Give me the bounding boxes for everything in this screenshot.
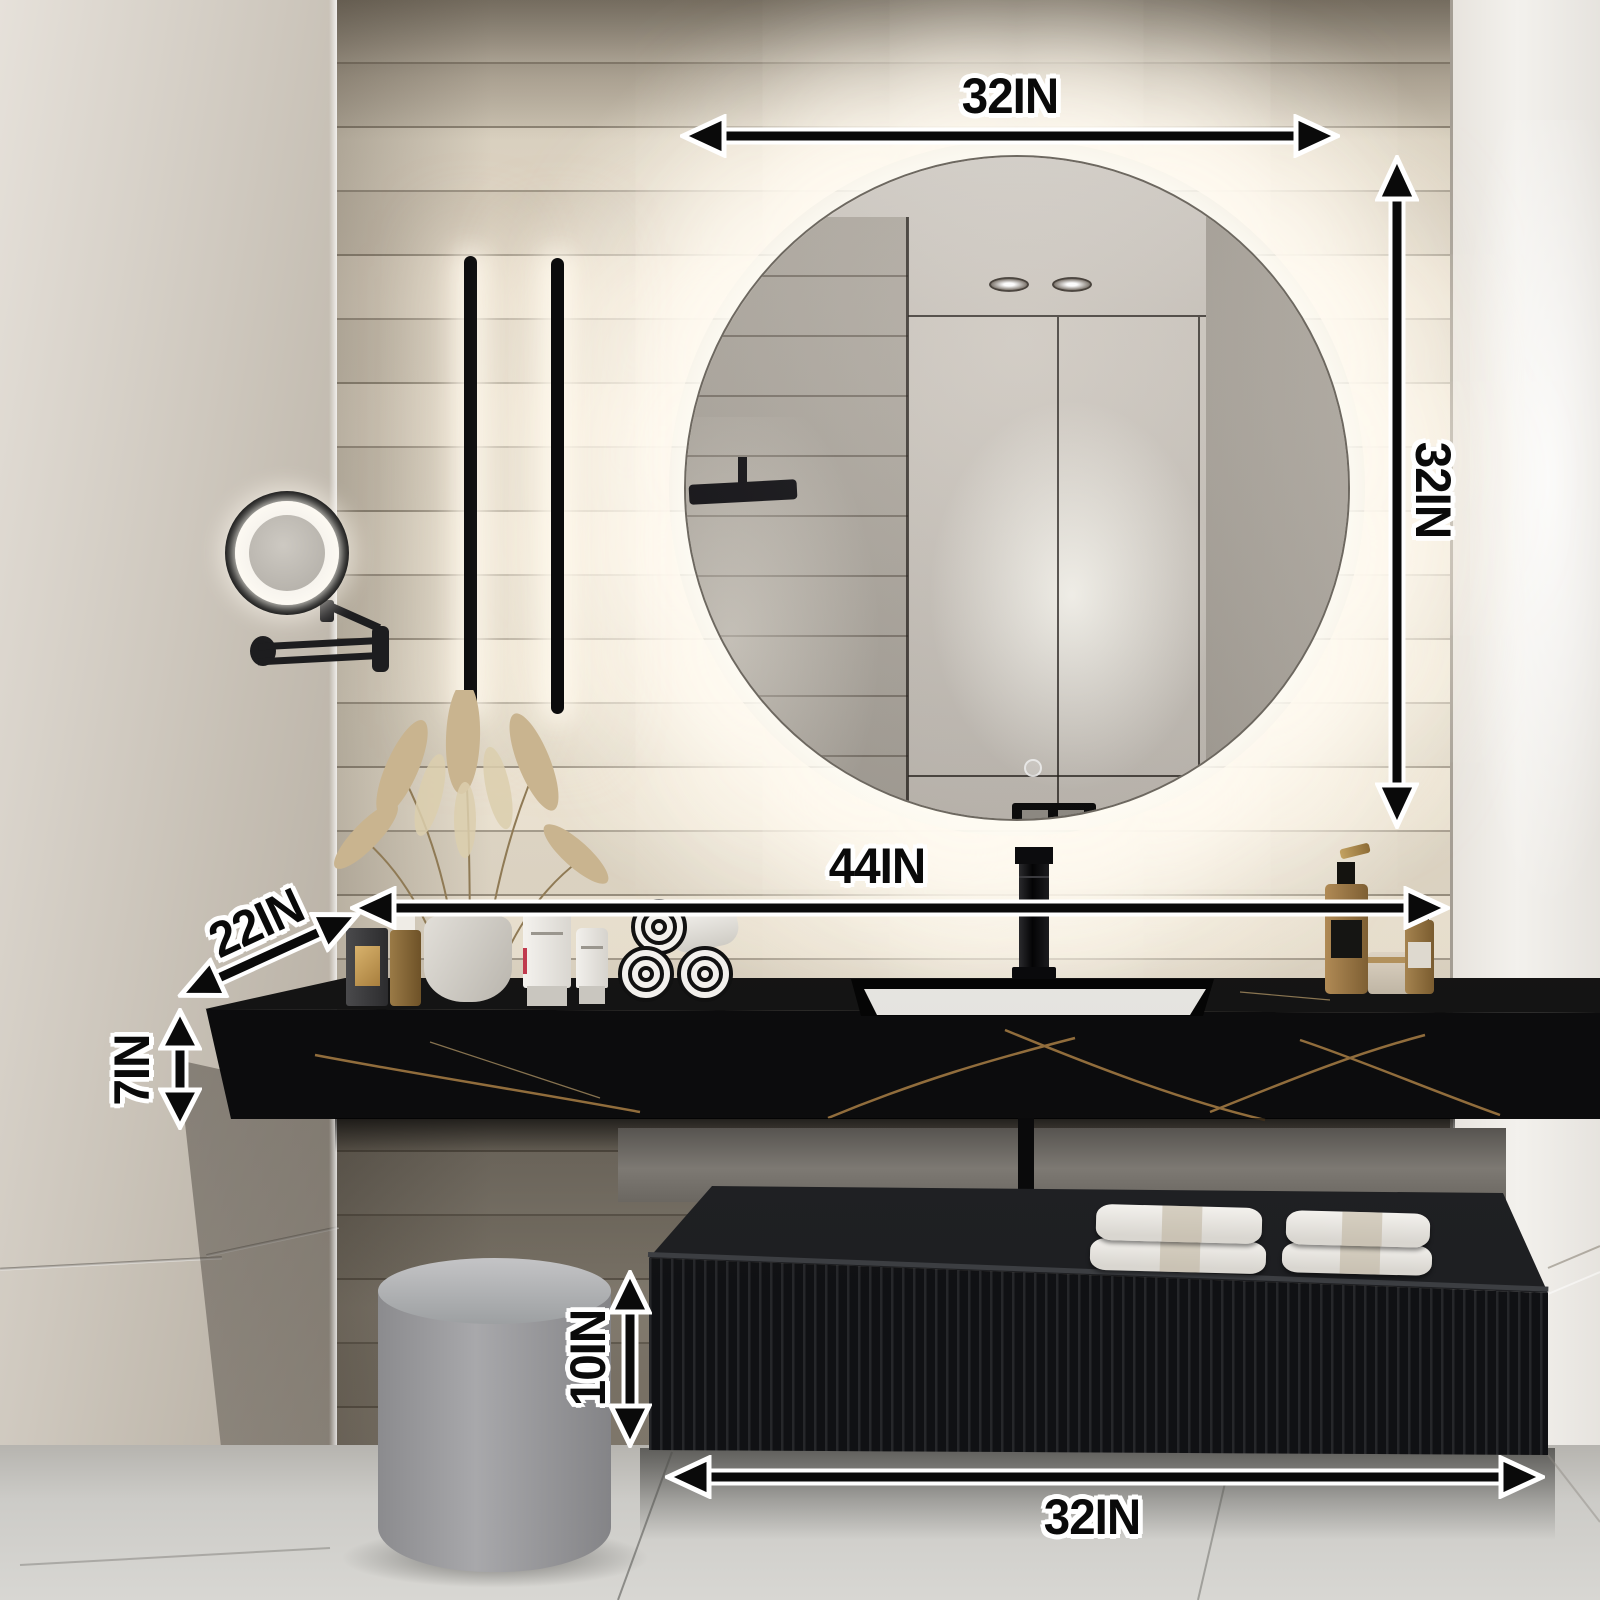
product-dimension-image: 32IN 32IN 44IN 22IN 7IN 10IN	[0, 0, 1600, 1600]
cosmetic-tube-cap	[527, 986, 567, 1006]
dimension-label-cabinet-width: 32IN	[1016, 1491, 1168, 1543]
small-bottle	[1405, 920, 1434, 994]
dimension-label-drawer-height: 10IN	[562, 1282, 614, 1434]
dimension-label-mirror-height: 32IN	[1407, 414, 1459, 566]
dimension-arrow-countertop-thickness	[158, 1008, 202, 1130]
dropper-bottle	[390, 930, 421, 1006]
cosmetic-tube-small-cap	[579, 986, 605, 1004]
folded-towel	[1096, 1204, 1263, 1244]
dimension-label-mirror-width: 32IN	[934, 70, 1086, 122]
folded-towel	[1286, 1210, 1431, 1248]
soap-dispenser-pump	[1337, 862, 1355, 886]
dimension-label-countertop-thickness: 7IN	[106, 994, 158, 1146]
faucet-seam	[1019, 876, 1049, 878]
faucet-base	[1012, 967, 1056, 979]
faucet-spout	[1015, 847, 1053, 864]
dimension-label-countertop-width: 44IN	[801, 840, 953, 892]
cosmetic-tube-small	[576, 928, 608, 988]
